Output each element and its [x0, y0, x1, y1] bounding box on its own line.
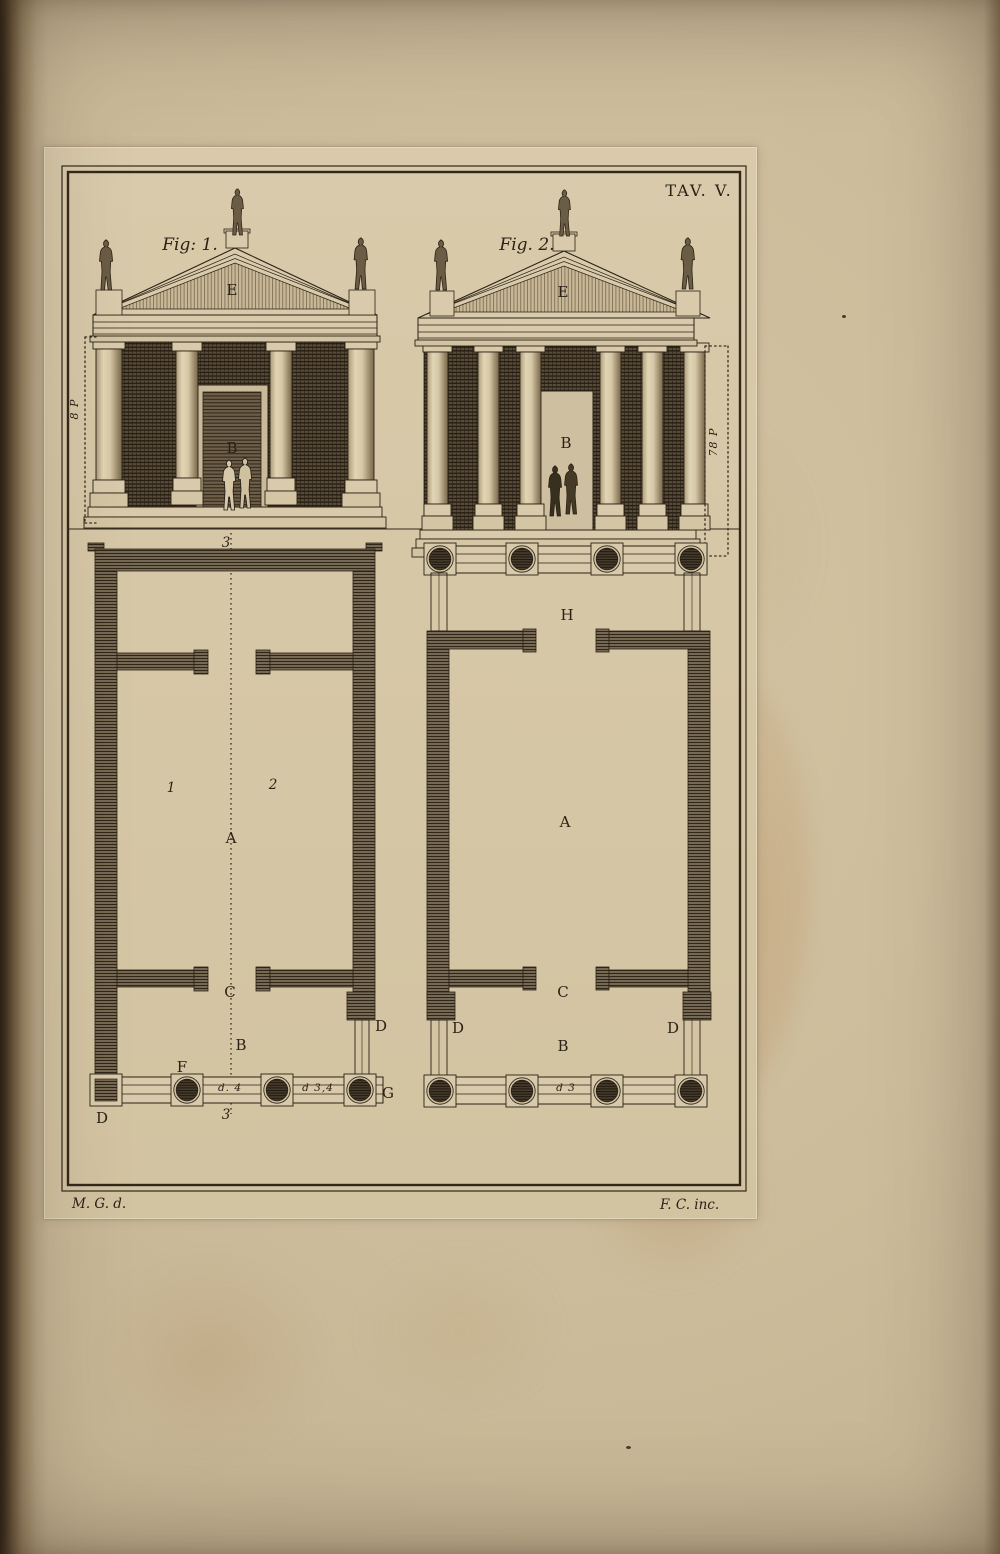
plan-column	[424, 543, 456, 575]
statue	[681, 238, 694, 289]
engraver-credit: F. C. inc.	[659, 1197, 719, 1213]
plan-column	[675, 543, 707, 575]
fig1-dimension-label: 8 P	[68, 399, 81, 420]
fig2-doorway	[539, 391, 593, 530]
plan2: H A C B D D d 3	[424, 543, 711, 1107]
plan1-intercolumniation-center: d. 4	[218, 1082, 242, 1094]
plan2-rear-colonnade	[424, 543, 707, 575]
fig2-elevation: Fig. 2. E B 78 P	[412, 190, 728, 557]
statue	[558, 190, 570, 236]
plan1-axis-top: 3	[222, 535, 231, 551]
plan2-label-D-left: D	[452, 1019, 464, 1037]
plan-column	[591, 1075, 623, 1107]
fig2-step	[420, 530, 696, 539]
fig2-pediment-label: E	[558, 283, 569, 301]
plan1-label-D-bottom-left: D	[96, 1109, 108, 1127]
statue	[354, 238, 367, 289]
fig2-dimension-label: 78 P	[707, 428, 720, 457]
fig2-entablature	[415, 318, 697, 346]
fig2-door-label: B	[560, 434, 571, 452]
plan-column	[424, 1075, 456, 1107]
plan2-label-C: C	[557, 983, 568, 1001]
statue	[100, 240, 113, 290]
statue	[435, 240, 448, 290]
fig1-step	[84, 517, 386, 528]
plan-column	[261, 1074, 293, 1106]
plan2-intercolumniation: d 3	[556, 1082, 576, 1094]
plan-column	[171, 1074, 203, 1106]
plan1-label-F: F	[177, 1058, 187, 1076]
book-page: TAV. V.	[0, 0, 1000, 1554]
plan2-label-D-right: D	[667, 1019, 679, 1037]
plan1-intercolumniation-right: d 3,4	[302, 1082, 334, 1094]
plan-column	[591, 543, 623, 575]
statue	[231, 189, 243, 235]
plan1-axis-bottom: 3	[222, 1107, 231, 1123]
plan2-label-A: A	[559, 813, 571, 831]
plan1-label-D-right: D	[375, 1017, 387, 1035]
plan1-label-C: C	[224, 983, 235, 1001]
fig1-caption: Fig: 1.	[161, 235, 217, 255]
plan2-label-H: H	[560, 606, 573, 624]
plan-column	[506, 1075, 538, 1107]
delineator-credit: M. G. d.	[71, 1196, 126, 1212]
fig1-entablature	[90, 315, 380, 342]
plan1-label-G: G	[382, 1084, 394, 1102]
plan-column	[344, 1074, 376, 1106]
plan1-label-1: 1	[167, 780, 176, 796]
plan1-anta-strip	[355, 1020, 369, 1077]
fig1-door-label: B	[226, 439, 237, 457]
fig1-step	[88, 507, 382, 517]
plan-column	[675, 1075, 707, 1107]
plan1: 3 3 1 2 A C B F G D D d. 4 d 3,4	[88, 533, 394, 1127]
plate-number: TAV. V.	[665, 181, 732, 200]
fig2-caption: Fig. 2.	[498, 235, 554, 255]
plan1-label-2: 2	[268, 777, 278, 793]
plan-column	[506, 543, 538, 575]
plan2-label-B: B	[557, 1037, 568, 1055]
fig1-pediment-label: E	[227, 281, 238, 299]
plan1-label-A: A	[225, 829, 237, 847]
engraving-canvas: TAV. V.	[0, 0, 1000, 1554]
plan1-label-B: B	[235, 1036, 246, 1054]
fig1-elevation: Fig: 1. E B 8 P	[68, 189, 386, 528]
